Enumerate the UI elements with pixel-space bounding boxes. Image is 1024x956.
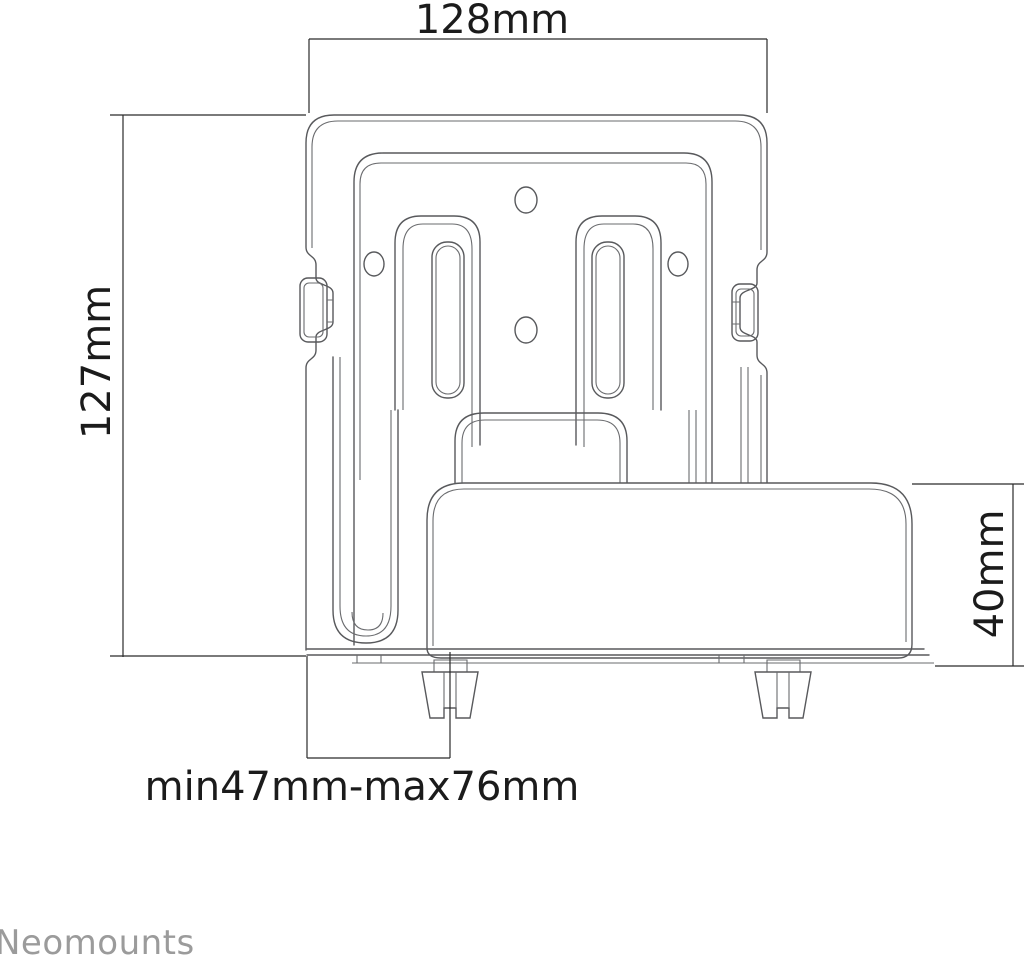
left-clip-tab-inner: [304, 283, 323, 337]
screw-hole-top: [515, 187, 537, 213]
screw-hole-bottom: [515, 317, 537, 343]
right-foot-tab: [767, 660, 800, 672]
screw-hole-left: [364, 252, 384, 276]
left-slot-inner: [436, 246, 460, 394]
left-clip: [300, 278, 333, 342]
dim-left-label: 127mm: [74, 285, 120, 439]
left-flex-channel: [333, 357, 398, 643]
right-channel-lines: [689, 367, 748, 483]
left-staple-mid: [403, 224, 472, 447]
dim-bottom-label: min47mm-max76mm: [145, 764, 580, 810]
channel-outer: [333, 357, 398, 643]
screw-holes: [364, 187, 688, 343]
channel-bottom-echo: [352, 612, 383, 630]
left-staple-outer: [395, 216, 480, 445]
right-foot: [755, 660, 811, 718]
right-clip-tab-inner: [736, 289, 754, 336]
technical-drawing-page: 128mm 127mm min47mm-max76mm 40mm Neomoun…: [0, 0, 1024, 956]
right-slot: [592, 242, 624, 398]
brand-logo-text: Neomounts: [0, 923, 195, 956]
channel-inner: [340, 357, 391, 636]
dim-right-label: 40mm: [967, 510, 1013, 639]
right-clip: [732, 284, 758, 341]
mount-diagram: 128mm 127mm min47mm-max76mm 40mm: [0, 0, 1024, 956]
screw-hole-right: [668, 252, 688, 276]
dim-bottom-lines: [307, 652, 450, 758]
dim-top-label: 128mm: [415, 0, 569, 43]
left-staple: [395, 216, 480, 447]
left-clip-bridge: [327, 300, 333, 322]
device-box-body: [427, 483, 912, 658]
dimension-bottom-depth: min47mm-max76mm: [145, 652, 580, 810]
device-box: [427, 483, 912, 658]
dim-top-lines: [309, 39, 767, 113]
dimension-top-width: 128mm: [309, 0, 767, 113]
arch-inner: [462, 420, 620, 483]
left-slot: [432, 242, 464, 398]
dim-left-lines: [110, 115, 306, 657]
right-foot-inner-edges: [777, 672, 789, 708]
bracket-inner-edge: [312, 121, 761, 483]
right-staple-outer: [576, 216, 661, 445]
cradle-arch: [455, 413, 627, 483]
arch-outer: [455, 413, 627, 483]
dimension-right-height: 40mm: [912, 484, 1024, 666]
dimension-left-height: 127mm: [74, 115, 306, 657]
right-slot-inner: [596, 246, 620, 394]
right-foot-legs: [755, 672, 811, 718]
